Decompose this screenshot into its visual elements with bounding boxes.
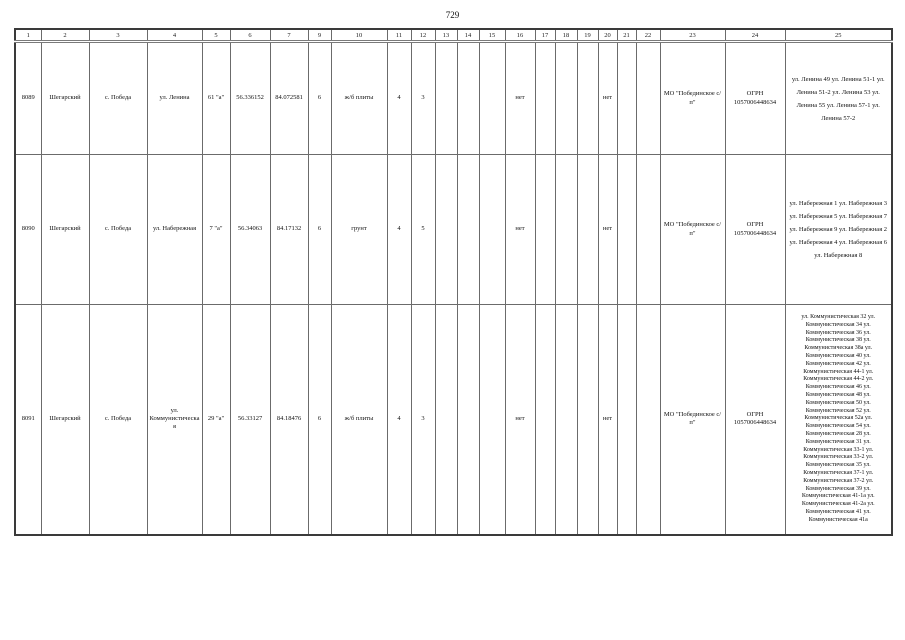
column-header: 20 xyxy=(598,29,617,42)
col-21 xyxy=(617,305,636,535)
column-header: 7 xyxy=(270,29,308,42)
col-12: 5 xyxy=(411,155,435,305)
district-name: Шегарский xyxy=(41,155,89,305)
floors-count: 6 xyxy=(308,42,331,155)
column-header: 22 xyxy=(636,29,660,42)
floors-count: 6 xyxy=(308,155,331,305)
col-21 xyxy=(617,155,636,305)
col-18 xyxy=(555,305,577,535)
col-22 xyxy=(636,305,660,535)
col-18 xyxy=(555,155,577,305)
col-16: нет xyxy=(505,42,535,155)
col-14 xyxy=(457,305,479,535)
district-name: Шегарский xyxy=(41,42,89,155)
col-13 xyxy=(435,155,457,305)
col-19 xyxy=(577,155,598,305)
district-name: Шегарский xyxy=(41,305,89,535)
table-row: 8091Шегарскийс. Победаул. Коммунистическ… xyxy=(15,305,892,535)
column-header: 5 xyxy=(202,29,230,42)
column-header: 18 xyxy=(555,29,577,42)
floors-count: 6 xyxy=(308,305,331,535)
table-row: 8090Шегарскийс. Победаул. Набережная7 "а… xyxy=(15,155,892,305)
table-body: 8089Шегарскийс. Победаул. Ленина61 "а"56… xyxy=(15,42,892,535)
col-17 xyxy=(535,42,555,155)
col-13 xyxy=(435,305,457,535)
column-header: 19 xyxy=(577,29,598,42)
col-13 xyxy=(435,42,457,155)
ogrn-number: ОГРН 1057006448634 xyxy=(725,42,785,155)
column-header: 1 xyxy=(15,29,41,42)
col-16: нет xyxy=(505,305,535,535)
col-17 xyxy=(535,305,555,535)
surface-type: ж/б плиты xyxy=(331,305,387,535)
latitude: 56.34063 xyxy=(230,155,270,305)
col-17 xyxy=(535,155,555,305)
address-list: ул. Ленина 49 ул. Ленина 51-1 ул. Ленина… xyxy=(785,42,892,155)
column-header: 23 xyxy=(660,29,725,42)
column-header: 10 xyxy=(331,29,387,42)
header-row: 1234567910111213141516171819202122232425 xyxy=(15,29,892,42)
street-name: ул. Коммунистическая xyxy=(147,305,202,535)
col-19 xyxy=(577,305,598,535)
management-org: МО "Побединское с/п" xyxy=(660,305,725,535)
ogrn-number: ОГРН 1057006448634 xyxy=(725,305,785,535)
column-header: 25 xyxy=(785,29,892,42)
ogrn-number: ОГРН 1057006448634 xyxy=(725,155,785,305)
col-18 xyxy=(555,42,577,155)
column-header: 14 xyxy=(457,29,479,42)
col-11: 4 xyxy=(387,305,411,535)
col-20: нет xyxy=(598,155,617,305)
management-org: МО "Побединское с/п" xyxy=(660,155,725,305)
col-22 xyxy=(636,155,660,305)
column-header: 17 xyxy=(535,29,555,42)
col-15 xyxy=(479,155,505,305)
col-16: нет xyxy=(505,155,535,305)
row-id: 8091 xyxy=(15,305,41,535)
col-19 xyxy=(577,42,598,155)
col-20: нет xyxy=(598,42,617,155)
column-header: 11 xyxy=(387,29,411,42)
col-11: 4 xyxy=(387,42,411,155)
col-20: нет xyxy=(598,305,617,535)
table-head: 1234567910111213141516171819202122232425 xyxy=(15,29,892,42)
surface-type: грунт xyxy=(331,155,387,305)
settlement-name: с. Победа xyxy=(89,305,147,535)
settlement-name: с. Победа xyxy=(89,42,147,155)
column-header: 13 xyxy=(435,29,457,42)
settlement-name: с. Победа xyxy=(89,155,147,305)
house-number: 7 "а" xyxy=(202,155,230,305)
col-14 xyxy=(457,42,479,155)
street-name: ул. Набережная xyxy=(147,155,202,305)
column-header: 21 xyxy=(617,29,636,42)
column-header: 2 xyxy=(41,29,89,42)
longitude: 84.072581 xyxy=(270,42,308,155)
surface-type: ж/б плиты xyxy=(331,42,387,155)
longitude: 84.17132 xyxy=(270,155,308,305)
longitude: 84.18476 xyxy=(270,305,308,535)
house-number: 29 "а" xyxy=(202,305,230,535)
column-header: 3 xyxy=(89,29,147,42)
col-15 xyxy=(479,42,505,155)
col-14 xyxy=(457,155,479,305)
latitude: 56.33127 xyxy=(230,305,270,535)
col-15 xyxy=(479,305,505,535)
column-header: 15 xyxy=(479,29,505,42)
page-number: 729 xyxy=(0,10,905,20)
col-22 xyxy=(636,42,660,155)
address-list: ул. Коммунистическая 32 ул. Коммунистиче… xyxy=(785,305,892,535)
street-name: ул. Ленина xyxy=(147,42,202,155)
column-header: 24 xyxy=(725,29,785,42)
col-11: 4 xyxy=(387,155,411,305)
col-12: 3 xyxy=(411,42,435,155)
row-id: 8089 xyxy=(15,42,41,155)
column-header: 6 xyxy=(230,29,270,42)
registry-table: 1234567910111213141516171819202122232425… xyxy=(14,28,893,536)
col-21 xyxy=(617,42,636,155)
latitude: 56.336152 xyxy=(230,42,270,155)
column-header: 4 xyxy=(147,29,202,42)
column-header: 16 xyxy=(505,29,535,42)
row-id: 8090 xyxy=(15,155,41,305)
house-number: 61 "а" xyxy=(202,42,230,155)
document-canvas: { "page": { "number": "729" }, "table": … xyxy=(0,0,905,640)
management-org: МО "Побединское с/п" xyxy=(660,42,725,155)
col-12: 3 xyxy=(411,305,435,535)
address-list: ул. Набережная 1 ул. Набережная 3 ул. На… xyxy=(785,155,892,305)
column-header: 12 xyxy=(411,29,435,42)
table-row: 8089Шегарскийс. Победаул. Ленина61 "а"56… xyxy=(15,42,892,155)
column-header: 9 xyxy=(308,29,331,42)
